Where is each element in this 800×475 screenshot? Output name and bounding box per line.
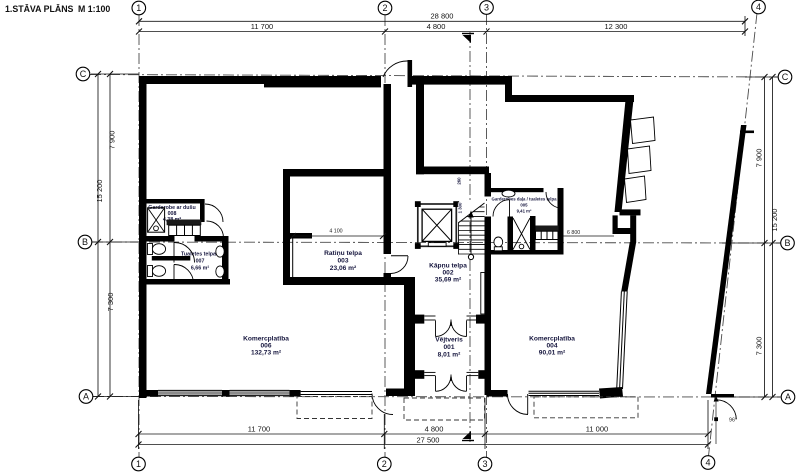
svg-text:004: 004 xyxy=(546,343,557,350)
svg-text:23,06 m²: 23,06 m² xyxy=(330,265,357,272)
svg-text:11 700: 11 700 xyxy=(251,22,273,31)
svg-text:4: 4 xyxy=(756,2,761,12)
svg-text:7 300: 7 300 xyxy=(106,293,115,312)
svg-text:96°: 96° xyxy=(729,418,737,424)
svg-text:Vējtveris: Vējtveris xyxy=(435,337,463,344)
svg-text:001: 001 xyxy=(443,344,454,351)
svg-text:003: 003 xyxy=(337,258,348,265)
svg-text:7 300: 7 300 xyxy=(755,337,764,356)
svg-text:15 200: 15 200 xyxy=(95,180,104,203)
svg-text:4: 4 xyxy=(705,458,710,468)
svg-text:1.STĀVA PLĀNS: 1.STĀVA PLĀNS xyxy=(5,4,74,14)
svg-text:8,01 m²: 8,01 m² xyxy=(438,352,462,359)
svg-text:1: 1 xyxy=(136,3,141,13)
svg-text:Komercplatība: Komercplatība xyxy=(243,336,289,343)
svg-text:006: 006 xyxy=(260,343,271,350)
svg-text:C: C xyxy=(782,72,789,82)
svg-text:11 700: 11 700 xyxy=(248,425,270,434)
svg-text:7 900: 7 900 xyxy=(108,131,117,150)
svg-text:11 000: 11 000 xyxy=(586,425,608,434)
svg-text:M 1:100: M 1:100 xyxy=(78,4,110,14)
svg-text:6 800: 6 800 xyxy=(567,230,580,236)
svg-text:7 900: 7 900 xyxy=(755,149,764,168)
svg-text:Komercplatība: Komercplatība xyxy=(529,336,575,343)
svg-text:2: 2 xyxy=(382,3,387,13)
svg-text:12 300: 12 300 xyxy=(605,22,628,31)
svg-text:B: B xyxy=(784,238,790,248)
svg-text:15 200: 15 200 xyxy=(770,209,779,232)
svg-text:C: C xyxy=(80,69,87,79)
svg-text:002: 002 xyxy=(442,270,453,277)
svg-text:3: 3 xyxy=(482,459,487,469)
svg-text:28 800: 28 800 xyxy=(431,12,454,21)
svg-text:005: 005 xyxy=(520,203,528,208)
svg-text:1: 1 xyxy=(136,459,141,469)
svg-text:B: B xyxy=(82,237,88,247)
svg-text:6,66 m²: 6,66 m² xyxy=(191,266,209,272)
svg-text:Kāpņu telpa: Kāpņu telpa xyxy=(429,263,467,270)
svg-text:2: 2 xyxy=(382,459,387,469)
svg-text:27 500: 27 500 xyxy=(417,436,440,445)
svg-text:A: A xyxy=(83,392,89,402)
svg-text:4 100: 4 100 xyxy=(329,229,342,235)
svg-text:35,69 m²: 35,69 m² xyxy=(435,277,462,284)
svg-text:9,41 m²: 9,41 m² xyxy=(517,209,532,214)
svg-text:4 800: 4 800 xyxy=(427,22,446,31)
svg-text:90,01 m²: 90,01 m² xyxy=(539,350,566,357)
svg-text:4 800: 4 800 xyxy=(425,425,444,434)
svg-text:3: 3 xyxy=(484,3,489,13)
svg-text:007: 007 xyxy=(196,259,205,265)
svg-text:260: 260 xyxy=(457,177,462,185)
svg-text:Ratiņu telpa: Ratiņu telpa xyxy=(324,250,362,257)
svg-text:1 300: 1 300 xyxy=(458,202,463,213)
svg-text:132,73 m²: 132,73 m² xyxy=(251,350,282,357)
svg-text:A: A xyxy=(785,392,791,402)
